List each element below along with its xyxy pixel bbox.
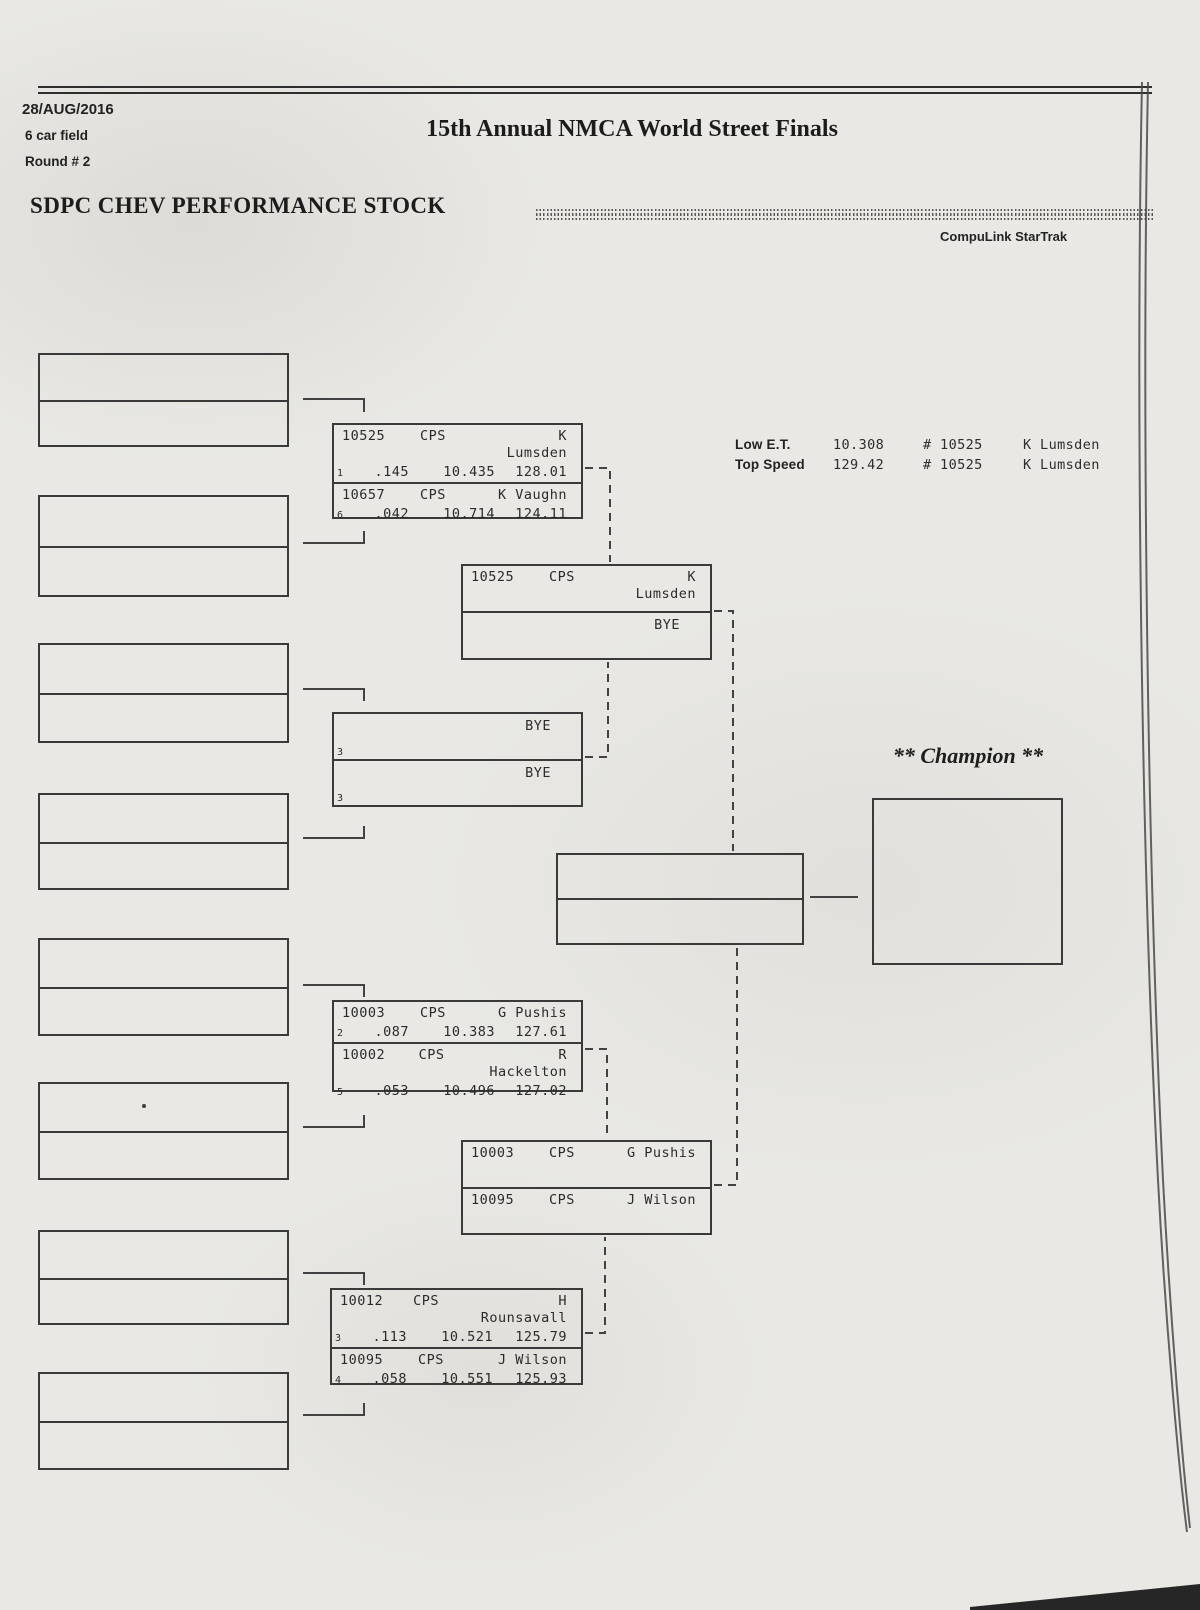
car-number: 10525 — [342, 428, 420, 445]
match-entry: 10095 CPS J Wilson 4 .058 10.551 125.93 — [332, 1347, 581, 1389]
bye-label: BYE — [654, 617, 680, 633]
empty-bracket-slot — [38, 1082, 289, 1180]
top-speed-driver: K Lumsden — [1023, 457, 1100, 473]
reaction-time: .042 — [353, 506, 409, 523]
lane-number: 5 — [337, 1084, 353, 1101]
driver-name: K Vaughn — [492, 487, 567, 504]
separator-dotted-band — [536, 209, 1153, 222]
low-et-value: 10.308 — [833, 437, 923, 453]
match-entry: 10012 CPS H Rounsavall 3 .113 10.521 125… — [332, 1290, 581, 1347]
reaction-time: .058 — [351, 1371, 407, 1388]
lane-number: 3 — [337, 747, 343, 758]
bye-label: BYE — [525, 718, 551, 734]
round-number: Round # 2 — [25, 152, 114, 172]
match-entry: BYE 3 — [334, 714, 581, 759]
car-number: 10525 — [471, 569, 549, 586]
reaction-time: .145 — [353, 464, 409, 481]
car-class: CPS — [549, 1145, 621, 1162]
match-entry: BYE — [463, 611, 710, 658]
lane-number: 6 — [337, 507, 353, 524]
elapsed-time: 10.521 — [407, 1329, 493, 1346]
top-speed-car: # 10525 — [923, 457, 1023, 473]
car-class: CPS — [549, 569, 621, 586]
car-number: 10095 — [340, 1352, 418, 1369]
car-number: 10095 — [471, 1192, 549, 1209]
trap-speed: 124.11 — [495, 506, 567, 523]
low-et-label: Low E.T. — [735, 437, 833, 453]
elapsed-time: 10.435 — [409, 464, 495, 481]
top-rule-1 — [38, 86, 1152, 88]
empty-bracket-slot — [38, 353, 289, 447]
scan-edge-shadow — [970, 1584, 1200, 1610]
elapsed-time: 10.383 — [409, 1024, 495, 1041]
car-class: CPS — [549, 1192, 621, 1209]
scan-artifact-dot — [142, 1104, 146, 1108]
car-number: 10003 — [471, 1145, 549, 1162]
empty-bracket-slot — [38, 793, 289, 890]
round1-match-4: 10012 CPS H Rounsavall 3 .113 10.521 125… — [330, 1288, 583, 1385]
event-title: 15th Annual NMCA World Street Finals — [332, 116, 932, 143]
car-class: CPS — [420, 1005, 492, 1022]
stats-block: Low E.T. 10.308 # 10525 K Lumsden Top Sp… — [735, 437, 1100, 473]
driver-name: R Hackelton — [489, 1047, 567, 1081]
bye-label: BYE — [525, 765, 551, 781]
car-number: 10657 — [342, 487, 420, 504]
match-entry: 10002 CPS R Hackelton 5 .053 10.496 127.… — [334, 1042, 581, 1101]
trap-speed: 128.01 — [495, 464, 567, 481]
lane-number: 4 — [335, 1372, 351, 1389]
trap-speed: 125.93 — [493, 1371, 567, 1388]
elapsed-time: 10.714 — [409, 506, 495, 523]
match-entry: 10657 CPS K Vaughn 6 .042 10.714 124.11 — [334, 482, 581, 524]
car-class: CPS — [419, 1047, 490, 1064]
match-entry — [558, 855, 802, 898]
match-entry: BYE 3 — [334, 759, 581, 806]
reaction-time: .113 — [351, 1329, 407, 1346]
match-entry — [558, 898, 802, 943]
match-entry: 10003 CPS G Pushis 2 .087 10.383 127.61 — [334, 1002, 581, 1042]
car-class: CPS — [418, 1352, 490, 1369]
class-title: SDPC CHEV PERFORMANCE STOCK — [30, 193, 446, 219]
round1-match-3: 10003 CPS G Pushis 2 .087 10.383 127.61 … — [332, 1000, 583, 1092]
match-entry: 10525 CPS K Lumsden — [463, 566, 710, 611]
empty-bracket-slot — [38, 1230, 289, 1325]
report-date: 28/AUG/2016 — [22, 100, 114, 120]
driver-name: K Lumsden — [492, 428, 567, 462]
field-size: 6 car field — [25, 126, 114, 146]
champion-label: ** Champion ** — [856, 743, 1080, 769]
low-et-car: # 10525 — [923, 437, 1023, 453]
driver-name: J Wilson — [621, 1192, 696, 1209]
car-class: CPS — [420, 428, 492, 445]
car-number: 10012 — [340, 1293, 413, 1310]
lane-number: 3 — [337, 793, 343, 804]
match-entry: 10003 CPS G Pushis — [463, 1142, 710, 1187]
driver-name: J Wilson — [490, 1352, 567, 1369]
lane-number: 3 — [335, 1330, 351, 1347]
low-et-driver: K Lumsden — [1023, 437, 1100, 453]
car-number: 10002 — [342, 1047, 419, 1064]
top-speed-value: 129.42 — [833, 457, 923, 473]
empty-bracket-slot — [38, 643, 289, 743]
elapsed-time: 10.551 — [407, 1371, 493, 1388]
semifinal-2: 10003 CPS G Pushis 10095 CPS J Wilson — [461, 1140, 712, 1235]
trap-speed: 127.61 — [495, 1024, 567, 1041]
trap-speed: 125.79 — [493, 1329, 567, 1346]
timing-system-brand: CompuLink StarTrak — [940, 229, 1110, 244]
empty-bracket-slot — [38, 1372, 289, 1470]
driver-name: H Rounsavall — [481, 1293, 567, 1327]
match-entry: 10095 CPS J Wilson — [463, 1187, 710, 1234]
reaction-time: .053 — [353, 1083, 409, 1100]
trap-speed: 127.02 — [495, 1083, 567, 1100]
empty-bracket-slot — [38, 495, 289, 597]
lane-number: 2 — [337, 1025, 353, 1042]
car-class: CPS — [413, 1293, 481, 1310]
page-curl-lines — [1139, 82, 1190, 1532]
driver-name: G Pushis — [621, 1145, 696, 1162]
driver-name: G Pushis — [492, 1005, 567, 1022]
top-rule-2 — [38, 92, 1152, 94]
semifinal-1: 10525 CPS K Lumsden BYE — [461, 564, 712, 660]
round1-match-1: 10525 CPS K Lumsden 1 .145 10.435 128.01… — [332, 423, 583, 519]
reaction-time: .087 — [353, 1024, 409, 1041]
match-entry: 10525 CPS K Lumsden 1 .145 10.435 128.01 — [334, 425, 581, 482]
driver-name: K Lumsden — [621, 569, 696, 603]
lane-number: 1 — [337, 465, 353, 482]
car-number: 10003 — [342, 1005, 420, 1022]
champion-box — [872, 798, 1063, 965]
empty-bracket-slot — [38, 938, 289, 1036]
final-match-box — [556, 853, 804, 945]
header-left: 28/AUG/2016 6 car field Round # 2 — [22, 100, 114, 172]
top-speed-label: Top Speed — [735, 457, 833, 473]
elimination-ladder-sheet: 28/AUG/2016 6 car field Round # 2 15th A… — [0, 0, 1200, 1610]
elapsed-time: 10.496 — [409, 1083, 495, 1100]
car-class: CPS — [420, 487, 492, 504]
round1-match-2: BYE 3 BYE 3 — [332, 712, 583, 807]
